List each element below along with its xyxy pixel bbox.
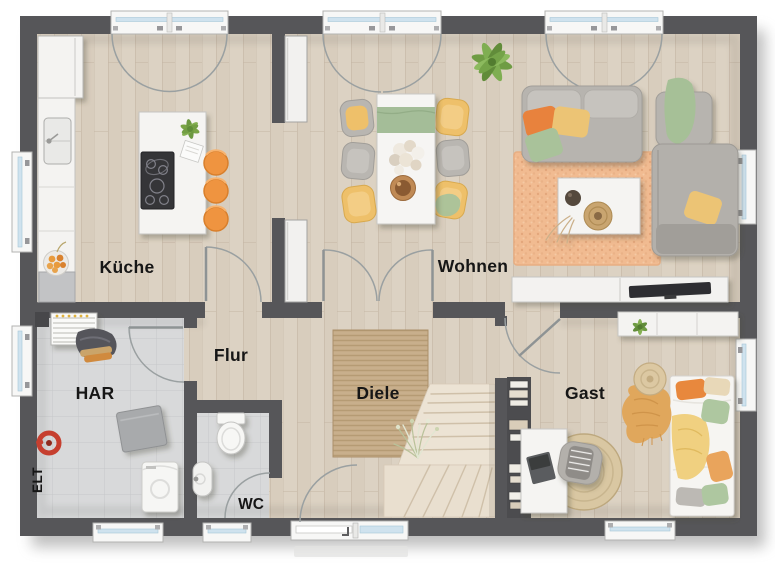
bar-stools	[204, 150, 228, 231]
label-elt: ELT	[30, 467, 45, 493]
tv-sideboard	[512, 277, 728, 302]
label-har: HAR	[76, 383, 115, 403]
dining	[339, 94, 470, 224]
sink	[193, 462, 212, 496]
sofa	[522, 86, 642, 164]
window-kitchen-left	[12, 152, 32, 252]
label-flur: Flur	[214, 345, 248, 365]
kitchen-counter	[38, 98, 75, 302]
dining-table	[377, 94, 435, 224]
label-gast: Gast	[565, 383, 605, 403]
label-wohnen: Wohnen	[438, 256, 509, 276]
window-wc-bottom	[203, 523, 251, 542]
window-living-top	[545, 11, 663, 34]
label-kueche: Küche	[100, 257, 155, 277]
storage-box	[116, 405, 167, 452]
straw-hat	[634, 363, 666, 395]
floor-plan: Küche Wohnen Flur Diele HAR WC Gast ELT	[0, 0, 775, 563]
entrance-door	[291, 521, 408, 557]
chaise-sofa	[652, 144, 738, 256]
kitchen-tall-cabinet	[38, 36, 83, 98]
table-bowl	[391, 176, 416, 201]
bed	[670, 376, 734, 516]
window-kitchen-top	[111, 11, 228, 34]
window-har-bottom	[93, 523, 163, 542]
floor-plan-canvas: Küche Wohnen Flur Diele HAR WC Gast ELT	[0, 0, 775, 563]
window-gast-right	[736, 339, 756, 411]
coffee-table	[546, 178, 640, 243]
label-diele: Diele	[356, 383, 399, 403]
window-living-right	[736, 150, 756, 224]
window-dining-top	[323, 11, 441, 34]
washing-machine	[142, 462, 178, 512]
har-corner-box	[35, 312, 49, 327]
window-gast-bottom	[605, 521, 675, 540]
label-wc: WC	[238, 496, 264, 513]
desk-chair	[556, 440, 604, 487]
toilet	[217, 413, 245, 454]
cooktop	[141, 152, 174, 209]
window-har-left	[12, 326, 32, 396]
